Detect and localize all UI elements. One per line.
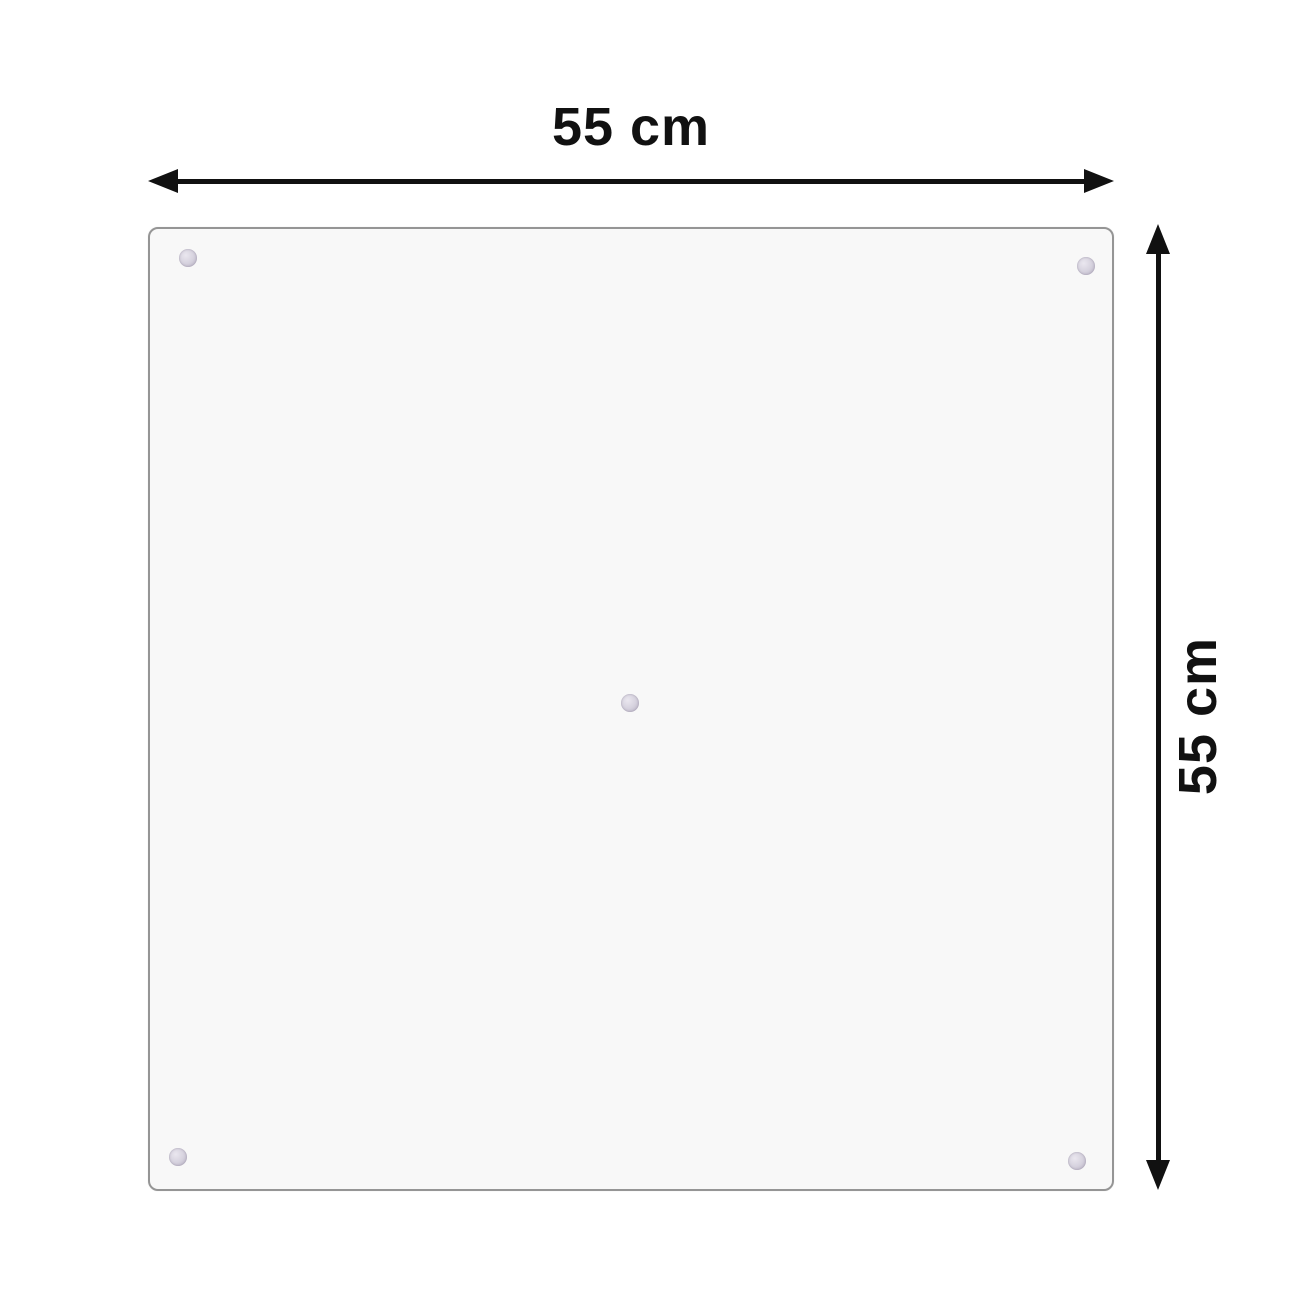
- suction-cup: [1077, 257, 1095, 275]
- width-dimension-arrow: [148, 179, 1114, 184]
- width-dimension-label: 55 cm: [148, 96, 1114, 158]
- arrowhead-right-icon: [1084, 169, 1114, 193]
- suction-cup: [179, 249, 197, 267]
- arrow-shaft: [1156, 246, 1161, 1168]
- height-dimension-arrow: [1156, 224, 1161, 1190]
- height-dimension-label: 55 cm: [1167, 637, 1229, 795]
- suction-cup: [1068, 1152, 1086, 1170]
- arrowhead-down-icon: [1146, 1160, 1170, 1190]
- dimension-diagram: 55 cm 55 cm: [0, 0, 1300, 1300]
- suction-cup: [169, 1148, 187, 1166]
- arrow-shaft: [170, 179, 1092, 184]
- suction-cup: [621, 694, 639, 712]
